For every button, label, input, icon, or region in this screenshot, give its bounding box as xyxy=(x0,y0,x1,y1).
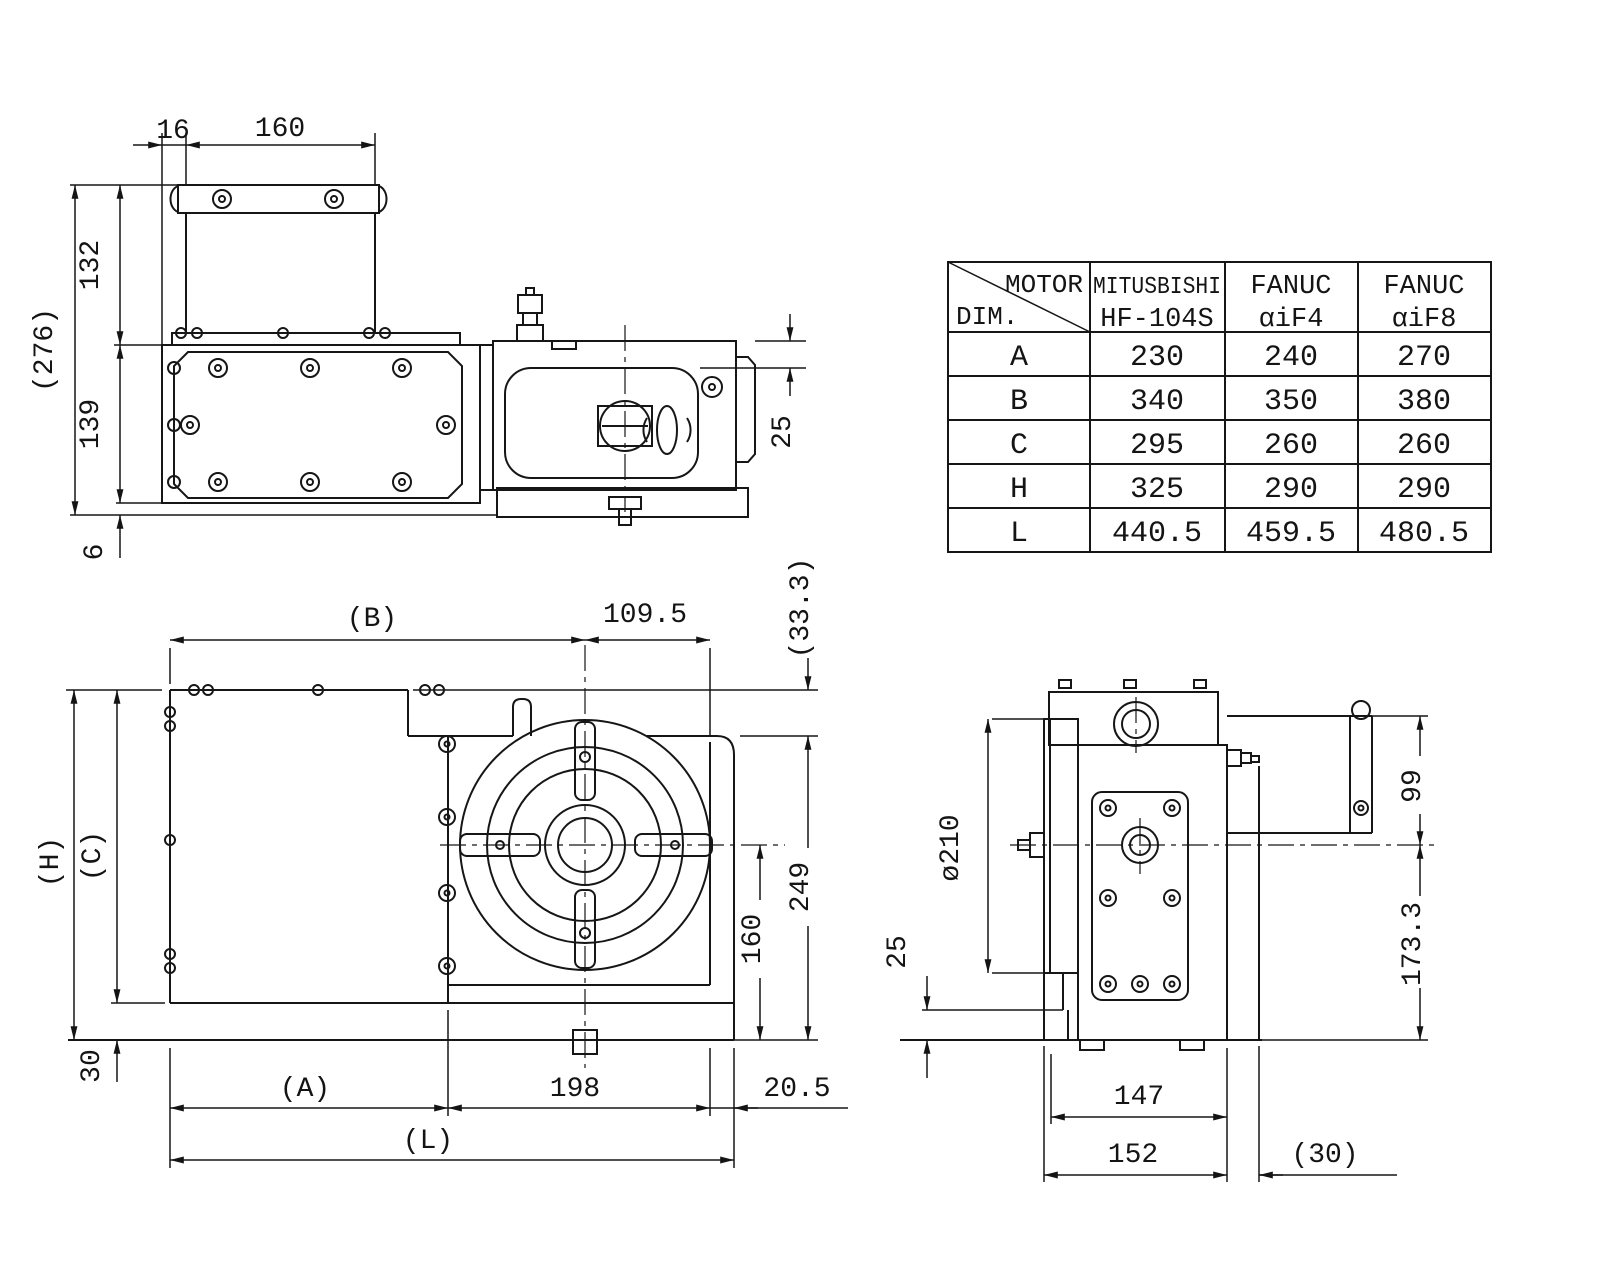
index-pointer-tab xyxy=(513,699,531,736)
rotary-table-face xyxy=(439,645,785,1068)
dim-B: (B) xyxy=(347,604,397,635)
dim-C: (C) xyxy=(78,831,109,881)
cell-C-2: 260 xyxy=(1397,429,1451,463)
dim-99: 99 xyxy=(1398,769,1429,803)
cell-L-0: 440.5 xyxy=(1112,517,1202,551)
side-view-dimensions: ø210 25 99 173.3 147 152 (30) xyxy=(883,716,1434,1182)
drawing-sheet: 16 160 (276) 132 139 6 25 MOTOR DIM. MIT… xyxy=(0,0,1600,1280)
dim-L: (L) xyxy=(403,1126,453,1157)
dim-147: 147 xyxy=(1114,1082,1164,1113)
dim-132: 132 xyxy=(76,240,107,290)
dim-109-5: 109.5 xyxy=(603,600,687,631)
cell-H-2: 290 xyxy=(1397,473,1451,507)
col-header-fanuc8-2: αiF8 xyxy=(1392,305,1457,335)
gearbox-body-front xyxy=(165,685,734,1003)
clamp-lever xyxy=(657,406,677,454)
spindle-head-top xyxy=(480,288,755,525)
dim-25-side: 25 xyxy=(883,935,914,969)
col-header-mitsubishi-2: HF-104S xyxy=(1100,305,1213,335)
row-dim-L: L xyxy=(1010,517,1028,551)
gearbox-body-top xyxy=(162,345,480,503)
cell-C-1: 260 xyxy=(1264,429,1318,463)
dim-30-side: (30) xyxy=(1291,1140,1358,1171)
dim-6: 6 xyxy=(80,544,111,561)
air-fitting-side xyxy=(1227,750,1259,766)
row-dim-B: B xyxy=(1010,385,1028,419)
cell-A-2: 270 xyxy=(1397,341,1451,375)
dim-249: 249 xyxy=(786,862,817,912)
cell-B-1: 350 xyxy=(1264,385,1318,419)
dim-20-5: 20.5 xyxy=(763,1074,830,1105)
front-view-dimensions: (B) 109.5 (33.3) 249 160 (H) (C) 30 (A) … xyxy=(36,558,848,1168)
dim-160-front: 160 xyxy=(738,914,769,964)
dim-16: 16 xyxy=(156,116,190,147)
col-header-mitsubishi-1: MITUSBISHI xyxy=(1093,274,1221,301)
cell-A-1: 240 xyxy=(1264,341,1318,375)
table-corner-dim: DIM. xyxy=(956,302,1018,332)
dim-139: 139 xyxy=(76,399,107,449)
dim-160: 160 xyxy=(255,114,305,145)
top-view-dimensions: 16 160 (276) 132 139 6 25 xyxy=(30,114,806,560)
motor-clamp-bar xyxy=(171,185,387,213)
table-row: A 230 240 270 xyxy=(1010,341,1451,375)
dim-A: (A) xyxy=(280,1074,330,1105)
dim-H: (H) xyxy=(36,837,67,887)
top-view: 16 160 (276) 132 139 6 25 xyxy=(30,114,806,560)
dim-25-top: 25 xyxy=(768,415,799,449)
cell-C-0: 295 xyxy=(1130,429,1184,463)
cell-L-1: 459.5 xyxy=(1246,517,1336,551)
top-clamp-housing xyxy=(1049,680,1218,746)
cell-B-2: 380 xyxy=(1397,385,1451,419)
dim-198: 198 xyxy=(550,1074,600,1105)
dim-dia-210: ø210 xyxy=(936,814,967,881)
motor-rear xyxy=(1227,701,1372,833)
table-row: B 340 350 380 xyxy=(1010,385,1451,419)
cell-H-0: 325 xyxy=(1130,473,1184,507)
cell-A-0: 230 xyxy=(1130,341,1184,375)
table-row: H 325 290 290 xyxy=(1010,473,1451,507)
cell-B-0: 340 xyxy=(1130,385,1184,419)
body-side xyxy=(1078,745,1259,1040)
col-header-fanuc4-1: FANUC xyxy=(1250,272,1331,302)
cad-drawing: 16 160 (276) 132 139 6 25 MOTOR DIM. MIT… xyxy=(0,0,1600,1280)
row-dim-H: H xyxy=(1010,473,1028,507)
base-plate-top xyxy=(497,488,748,517)
dim-276: (276) xyxy=(30,308,61,392)
cell-H-1: 290 xyxy=(1264,473,1318,507)
air-fitting-top xyxy=(517,288,543,341)
side-view: ø210 25 99 173.3 147 152 (30) xyxy=(883,680,1435,1182)
motor-housing-top xyxy=(172,213,460,345)
col-header-fanuc8-1: FANUC xyxy=(1383,272,1464,302)
row-dim-C: C xyxy=(1010,429,1028,463)
base-side xyxy=(900,766,1262,1050)
table-corner-motor: MOTOR xyxy=(1005,270,1083,300)
table-row: C 295 260 260 xyxy=(1010,429,1451,463)
face-plate-edge-top xyxy=(736,357,755,462)
dim-30-front: 30 xyxy=(77,1049,108,1083)
front-view: (B) 109.5 (33.3) 249 160 (H) (C) 30 (A) … xyxy=(36,558,848,1168)
cell-L-2: 480.5 xyxy=(1379,517,1469,551)
dim-152: 152 xyxy=(1108,1140,1158,1171)
motor-dimension-table: MOTOR DIM. MITUSBISHI HF-104S FANUC αiF4… xyxy=(948,262,1491,552)
col-header-fanuc4-2: αiF4 xyxy=(1259,305,1324,335)
face-plate-side xyxy=(1018,719,1078,1040)
table-row: L 440.5 459.5 480.5 xyxy=(1010,517,1469,551)
dim-33-3: (33.3) xyxy=(786,558,817,659)
row-dim-A: A xyxy=(1010,341,1028,375)
dim-173-3: 173.3 xyxy=(1398,902,1429,986)
cover-plate-screws xyxy=(168,359,455,491)
